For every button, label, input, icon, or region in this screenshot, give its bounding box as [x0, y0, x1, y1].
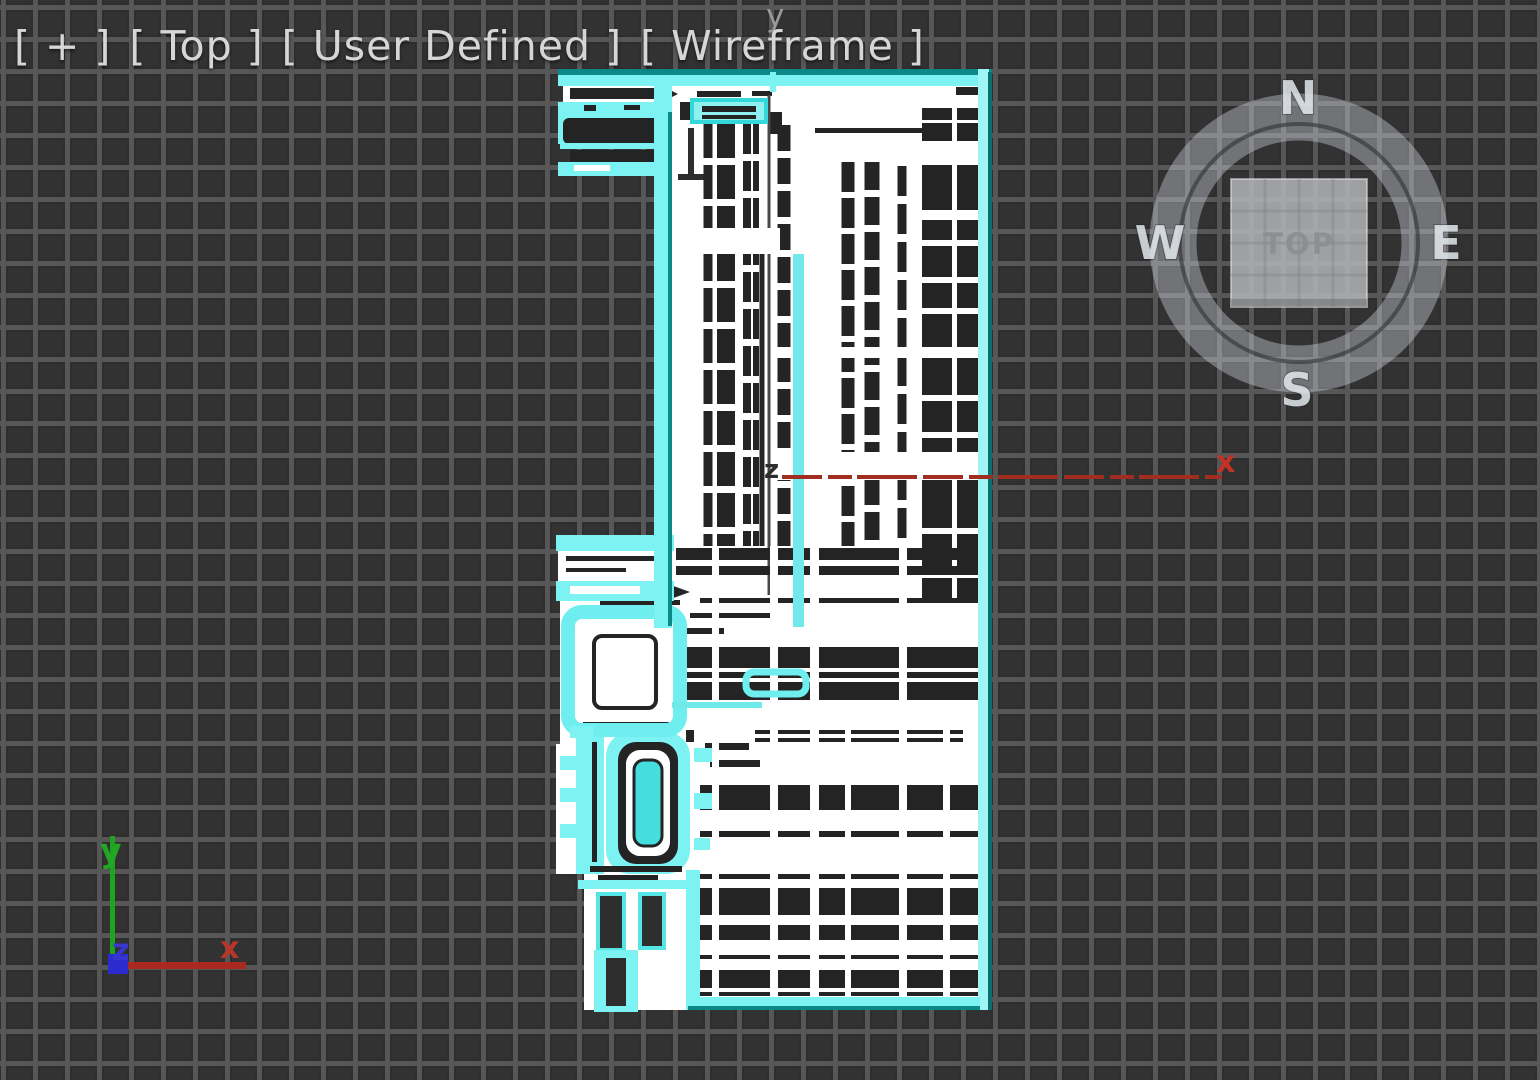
viewport-menu-shading[interactable]: [ Wireframe ] — [640, 24, 925, 69]
compass-west[interactable]: W — [1135, 216, 1186, 270]
gizmo-z-label: z — [764, 455, 779, 485]
viewport-menu-view[interactable]: [ Top ] — [129, 24, 263, 69]
compass-east[interactable]: E — [1430, 216, 1461, 270]
viewport-menu-general[interactable]: [ + ] — [14, 24, 111, 69]
tripod-x-label: x — [220, 931, 239, 966]
tripod-z-label: z — [112, 933, 129, 968]
viewcube-face-label: TOP — [1263, 227, 1335, 261]
gizmo-x-label: x — [1216, 445, 1235, 480]
viewcube-top-face[interactable]: TOP — [1231, 179, 1367, 307]
viewport-label: [ + ] [ Top ] [ User Defined ] [ Wirefra… — [14, 24, 925, 69]
compass-north[interactable]: N — [1279, 71, 1318, 125]
viewport-canvas[interactable]: x z y y z x TOP N E S — [0, 0, 1540, 1080]
compass-south[interactable]: S — [1280, 363, 1313, 417]
tripod-y-label: y — [100, 831, 122, 870]
viewport-menu-lighting[interactable]: [ User Defined ] — [282, 24, 622, 69]
